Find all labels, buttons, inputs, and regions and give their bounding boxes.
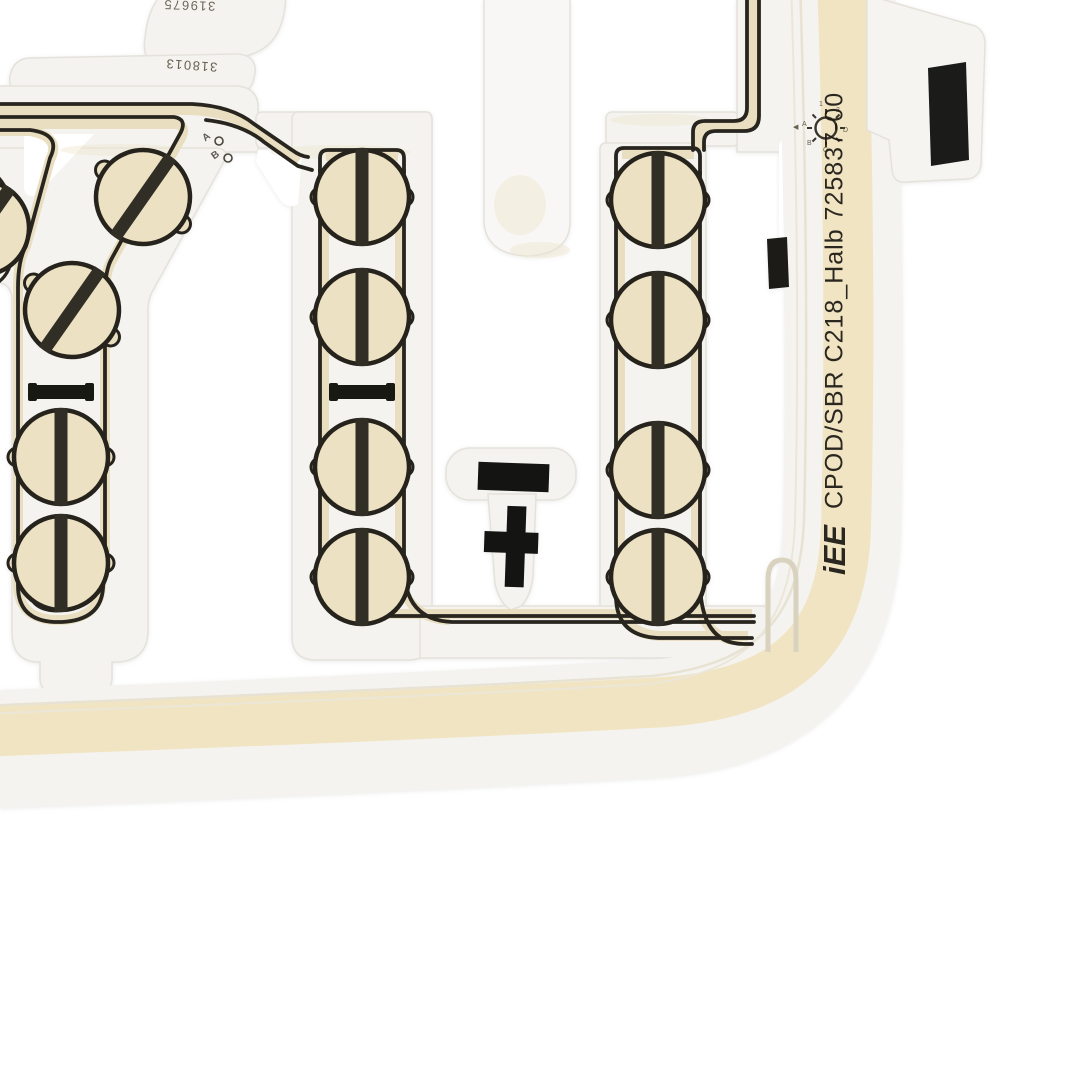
- sensor-mat-artwork: [0, 0, 1080, 1080]
- resistor-mark: [329, 383, 395, 401]
- resistor-mark: [28, 383, 94, 401]
- calibration-letter: B: [807, 140, 812, 147]
- part-number-text: CPOD/SBR C218_Halb 725837-00: [821, 92, 850, 509]
- serial-number-top: 319675: [163, 0, 216, 14]
- black-rectangle-marker: [928, 62, 969, 166]
- black-rectangle-marker-small: [767, 237, 789, 289]
- resistor-marks: [28, 383, 395, 401]
- part-number-label: iEE CPOD/SBR C218_Halb 725837-00: [818, 70, 852, 575]
- sensor-mat-product-photo: 319675 318013 A B ◀ A B C D 1 2 iEE CPOD…: [0, 0, 1080, 1080]
- calibration-letter: A: [802, 121, 807, 128]
- calibration-pointer-icon: ◀: [793, 123, 798, 131]
- brand-logo: iEE: [817, 525, 853, 575]
- polarity-minus-mark: [478, 462, 550, 492]
- polarity-marks: [478, 462, 550, 588]
